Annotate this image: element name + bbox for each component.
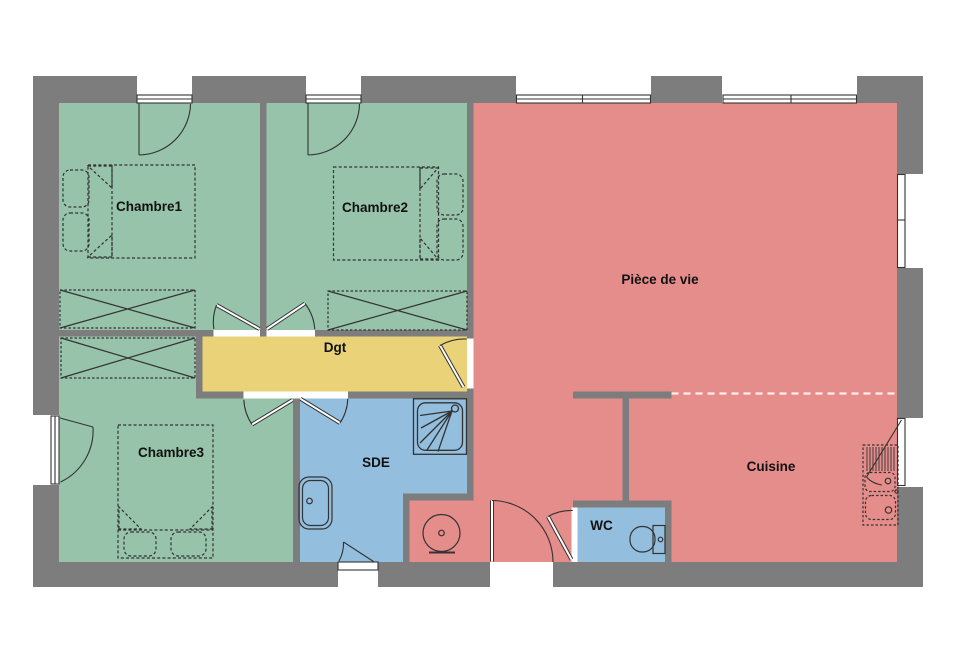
- wall-segment: [467, 389, 474, 494]
- room-chambre2-area: [267, 103, 468, 330]
- door-opening: [244, 392, 294, 399]
- room-label-cuisine: Cuisine: [747, 459, 796, 474]
- door-opening: [300, 392, 348, 399]
- door-opening: [267, 330, 316, 337]
- floor-plan: Chambre1 Chambre2 Pièce de vie Dgt Chamb…: [0, 0, 960, 665]
- door-opening: [214, 330, 261, 337]
- wall-segment: [403, 494, 410, 563]
- room-chambre1-area: [59, 103, 260, 330]
- window-icon: [338, 562, 378, 570]
- wall-segment: [897, 76, 923, 587]
- room-piece-de-vie-area: [474, 103, 899, 562]
- room-wc-area: [578, 508, 666, 563]
- wall-segment: [623, 392, 630, 508]
- wall-segment: [196, 330, 203, 399]
- wall-segment: [348, 392, 470, 399]
- wall-segment: [467, 103, 474, 339]
- front-door-opening: [490, 562, 553, 587]
- wall-segment: [260, 103, 267, 337]
- wall-segment: [33, 562, 923, 587]
- wall-segment: [196, 392, 244, 399]
- door-opening: [467, 339, 474, 389]
- room-label-wc: WC: [590, 518, 613, 533]
- floor-plan-canvas: Chambre1 Chambre2 Pièce de vie Dgt Chamb…: [0, 0, 960, 665]
- room-label-sde: SDE: [362, 455, 390, 470]
- wall-segment: [573, 501, 672, 508]
- wall-segment: [315, 330, 470, 337]
- wall-segment: [293, 399, 300, 563]
- wall-segment: [665, 501, 672, 563]
- wall-segment: [573, 392, 672, 399]
- room-label-dgt: Dgt: [324, 340, 347, 355]
- window-icon: [898, 419, 906, 486]
- window-icon: [898, 175, 906, 268]
- wall-segment: [403, 494, 474, 501]
- room-label-chambre1: Chambre1: [116, 199, 183, 214]
- room-label-piece-de-vie: Pièce de vie: [621, 272, 699, 287]
- room-label-chambre2: Chambre2: [342, 200, 408, 215]
- room-label-chambre3: Chambre3: [138, 445, 205, 460]
- door-opening: [572, 508, 578, 563]
- wall-segment: [33, 330, 214, 337]
